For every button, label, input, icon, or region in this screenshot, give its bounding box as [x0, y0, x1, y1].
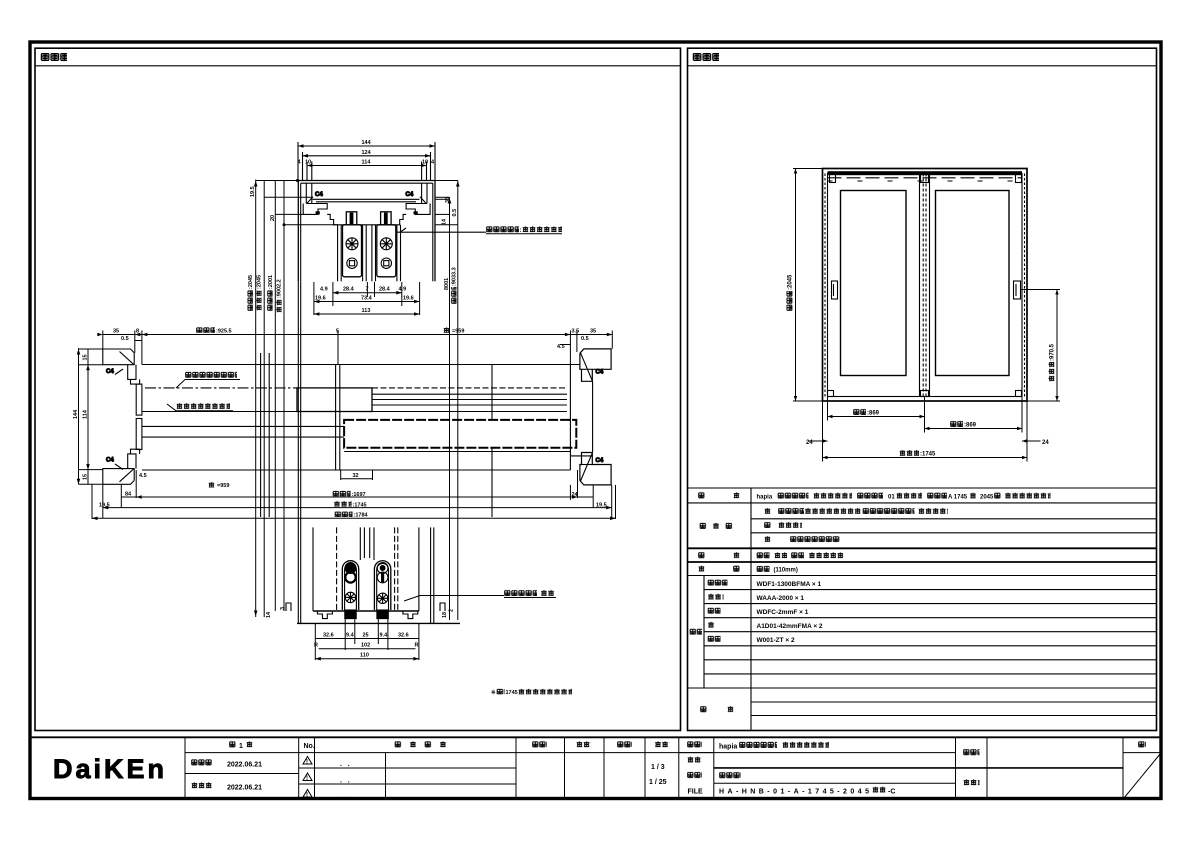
svg-text:9.4: 9.4 [380, 632, 389, 638]
svg-text:24: 24 [806, 440, 813, 446]
svg-text::1745: :1745 [353, 502, 367, 508]
svg-text:A1D01-42mmFMA × 2: A1D01-42mmFMA × 2 [757, 623, 823, 630]
svg-text::9002.2: :9002.2 [277, 279, 283, 298]
svg-text::1697: :1697 [352, 492, 366, 498]
svg-text::970.5: :970.5 [1050, 343, 1056, 361]
svg-text:4.9: 4.9 [320, 287, 328, 293]
svg-text:124: 124 [362, 150, 372, 156]
svg-text:19.6: 19.6 [315, 296, 326, 302]
svg-text:25: 25 [363, 632, 369, 638]
svg-text:R: R [415, 643, 419, 649]
svg-text:114: 114 [83, 409, 89, 419]
svg-text:. .: . . [340, 793, 350, 800]
svg-text:3: 3 [280, 607, 286, 610]
svg-text:. .: . . [340, 761, 350, 768]
svg-text:HA-HNB-01-A-1745-2045: HA-HNB-01-A-1745-2045 [719, 789, 869, 796]
svg-text:7: 7 [366, 287, 369, 293]
svg-text:No.: No. [304, 743, 315, 750]
svg-text::2045: :2045 [788, 274, 794, 290]
svg-text:73.4: 73.4 [361, 296, 373, 302]
svg-text:=959: =959 [217, 483, 229, 489]
svg-text:15: 15 [83, 474, 89, 480]
svg-text:5: 5 [336, 329, 339, 335]
svg-text:WDF1-1300BFMA × 1: WDF1-1300BFMA × 1 [757, 581, 822, 588]
svg-text::869: :869 [867, 410, 880, 416]
svg-text:C4: C4 [596, 370, 604, 376]
svg-text:FILE: FILE [688, 789, 703, 796]
svg-text:32.6: 32.6 [323, 632, 334, 638]
svg-text:144: 144 [73, 409, 79, 419]
svg-text::9033.3: :9033.3 [452, 267, 458, 286]
svg-text:1745: 1745 [506, 690, 518, 696]
svg-text:-C: -C [888, 789, 895, 796]
svg-text:C4: C4 [106, 369, 114, 375]
svg-text:102: 102 [361, 643, 370, 649]
svg-text:19.5: 19.5 [250, 186, 256, 197]
svg-text:4.5: 4.5 [557, 344, 565, 350]
svg-text:W001-ZT × 2: W001-ZT × 2 [757, 637, 795, 644]
svg-text:1: 1 [239, 743, 243, 750]
svg-text:R: R [314, 643, 318, 649]
svg-text:(110mm): (110mm) [774, 568, 798, 574]
svg-text:3.5: 3.5 [572, 329, 580, 335]
svg-text::869: :869 [964, 422, 977, 428]
svg-text:hapia: hapia [719, 744, 737, 751]
svg-text:32: 32 [353, 473, 359, 479]
svg-text::: : [520, 228, 522, 234]
svg-text:8001: 8001 [444, 278, 450, 290]
svg-text:15: 15 [83, 354, 89, 360]
svg-text:2022.06.21: 2022.06.21 [227, 785, 262, 792]
svg-text:※: ※ [491, 688, 496, 696]
svg-text:A 1745: A 1745 [948, 494, 968, 500]
svg-text:19.6: 19.6 [403, 296, 414, 302]
svg-text::2045: :2045 [248, 275, 254, 289]
svg-text:0.5: 0.5 [121, 336, 129, 342]
svg-text:!: ! [306, 760, 308, 766]
svg-text:C4: C4 [315, 192, 323, 198]
svg-text:28.4: 28.4 [379, 287, 391, 293]
svg-text:WDFC-2mmF × 1: WDFC-2mmF × 1 [757, 609, 809, 616]
svg-text:0.5: 0.5 [452, 209, 458, 217]
svg-text:C4: C4 [406, 192, 414, 198]
svg-text::1745: :1745 [920, 451, 936, 457]
svg-text:1 / 3: 1 / 3 [651, 764, 665, 771]
svg-text:14: 14 [442, 218, 448, 225]
svg-text:!: ! [306, 776, 308, 782]
svg-text::1784: :1784 [354, 513, 369, 519]
svg-text:113: 113 [362, 308, 371, 314]
svg-text:110: 110 [360, 653, 369, 659]
svg-text:hapia: hapia [757, 494, 773, 500]
svg-text:2045: 2045 [980, 494, 994, 500]
svg-text:19.5: 19.5 [596, 502, 607, 508]
svg-text:4.5: 4.5 [139, 473, 147, 479]
svg-text:35: 35 [113, 329, 119, 335]
svg-text:28.4: 28.4 [343, 287, 355, 293]
svg-text:=959: =959 [452, 329, 464, 335]
svg-text:2: 2 [449, 609, 455, 612]
svg-text:9.4: 9.4 [346, 632, 355, 638]
svg-text:. .: . . [340, 778, 350, 785]
svg-text:WAAA-2000 × 1: WAAA-2000 × 1 [757, 595, 805, 602]
svg-text:20: 20 [270, 215, 276, 221]
svg-text:2022.06.21: 2022.06.21 [227, 762, 262, 769]
svg-text:01: 01 [888, 494, 895, 500]
svg-text::2001: :2001 [268, 275, 274, 289]
svg-text:144: 144 [362, 140, 372, 146]
svg-text:35: 35 [590, 329, 596, 335]
svg-text:14: 14 [266, 611, 272, 618]
svg-text:!: ! [306, 793, 308, 799]
svg-text:C4: C4 [596, 458, 604, 464]
svg-text:4.9: 4.9 [399, 287, 407, 293]
svg-text::925.5: :925.5 [216, 329, 232, 335]
svg-text:C4: C4 [106, 458, 114, 464]
svg-text:0.5: 0.5 [581, 336, 589, 342]
svg-text:24: 24 [1042, 440, 1049, 446]
svg-text:114: 114 [362, 160, 372, 166]
svg-text:84: 84 [125, 492, 132, 498]
svg-text:18: 18 [442, 612, 448, 618]
svg-text:32.6: 32.6 [398, 632, 409, 638]
svg-text::2045: :2045 [257, 275, 263, 289]
svg-text:1 / 25: 1 / 25 [649, 779, 667, 786]
